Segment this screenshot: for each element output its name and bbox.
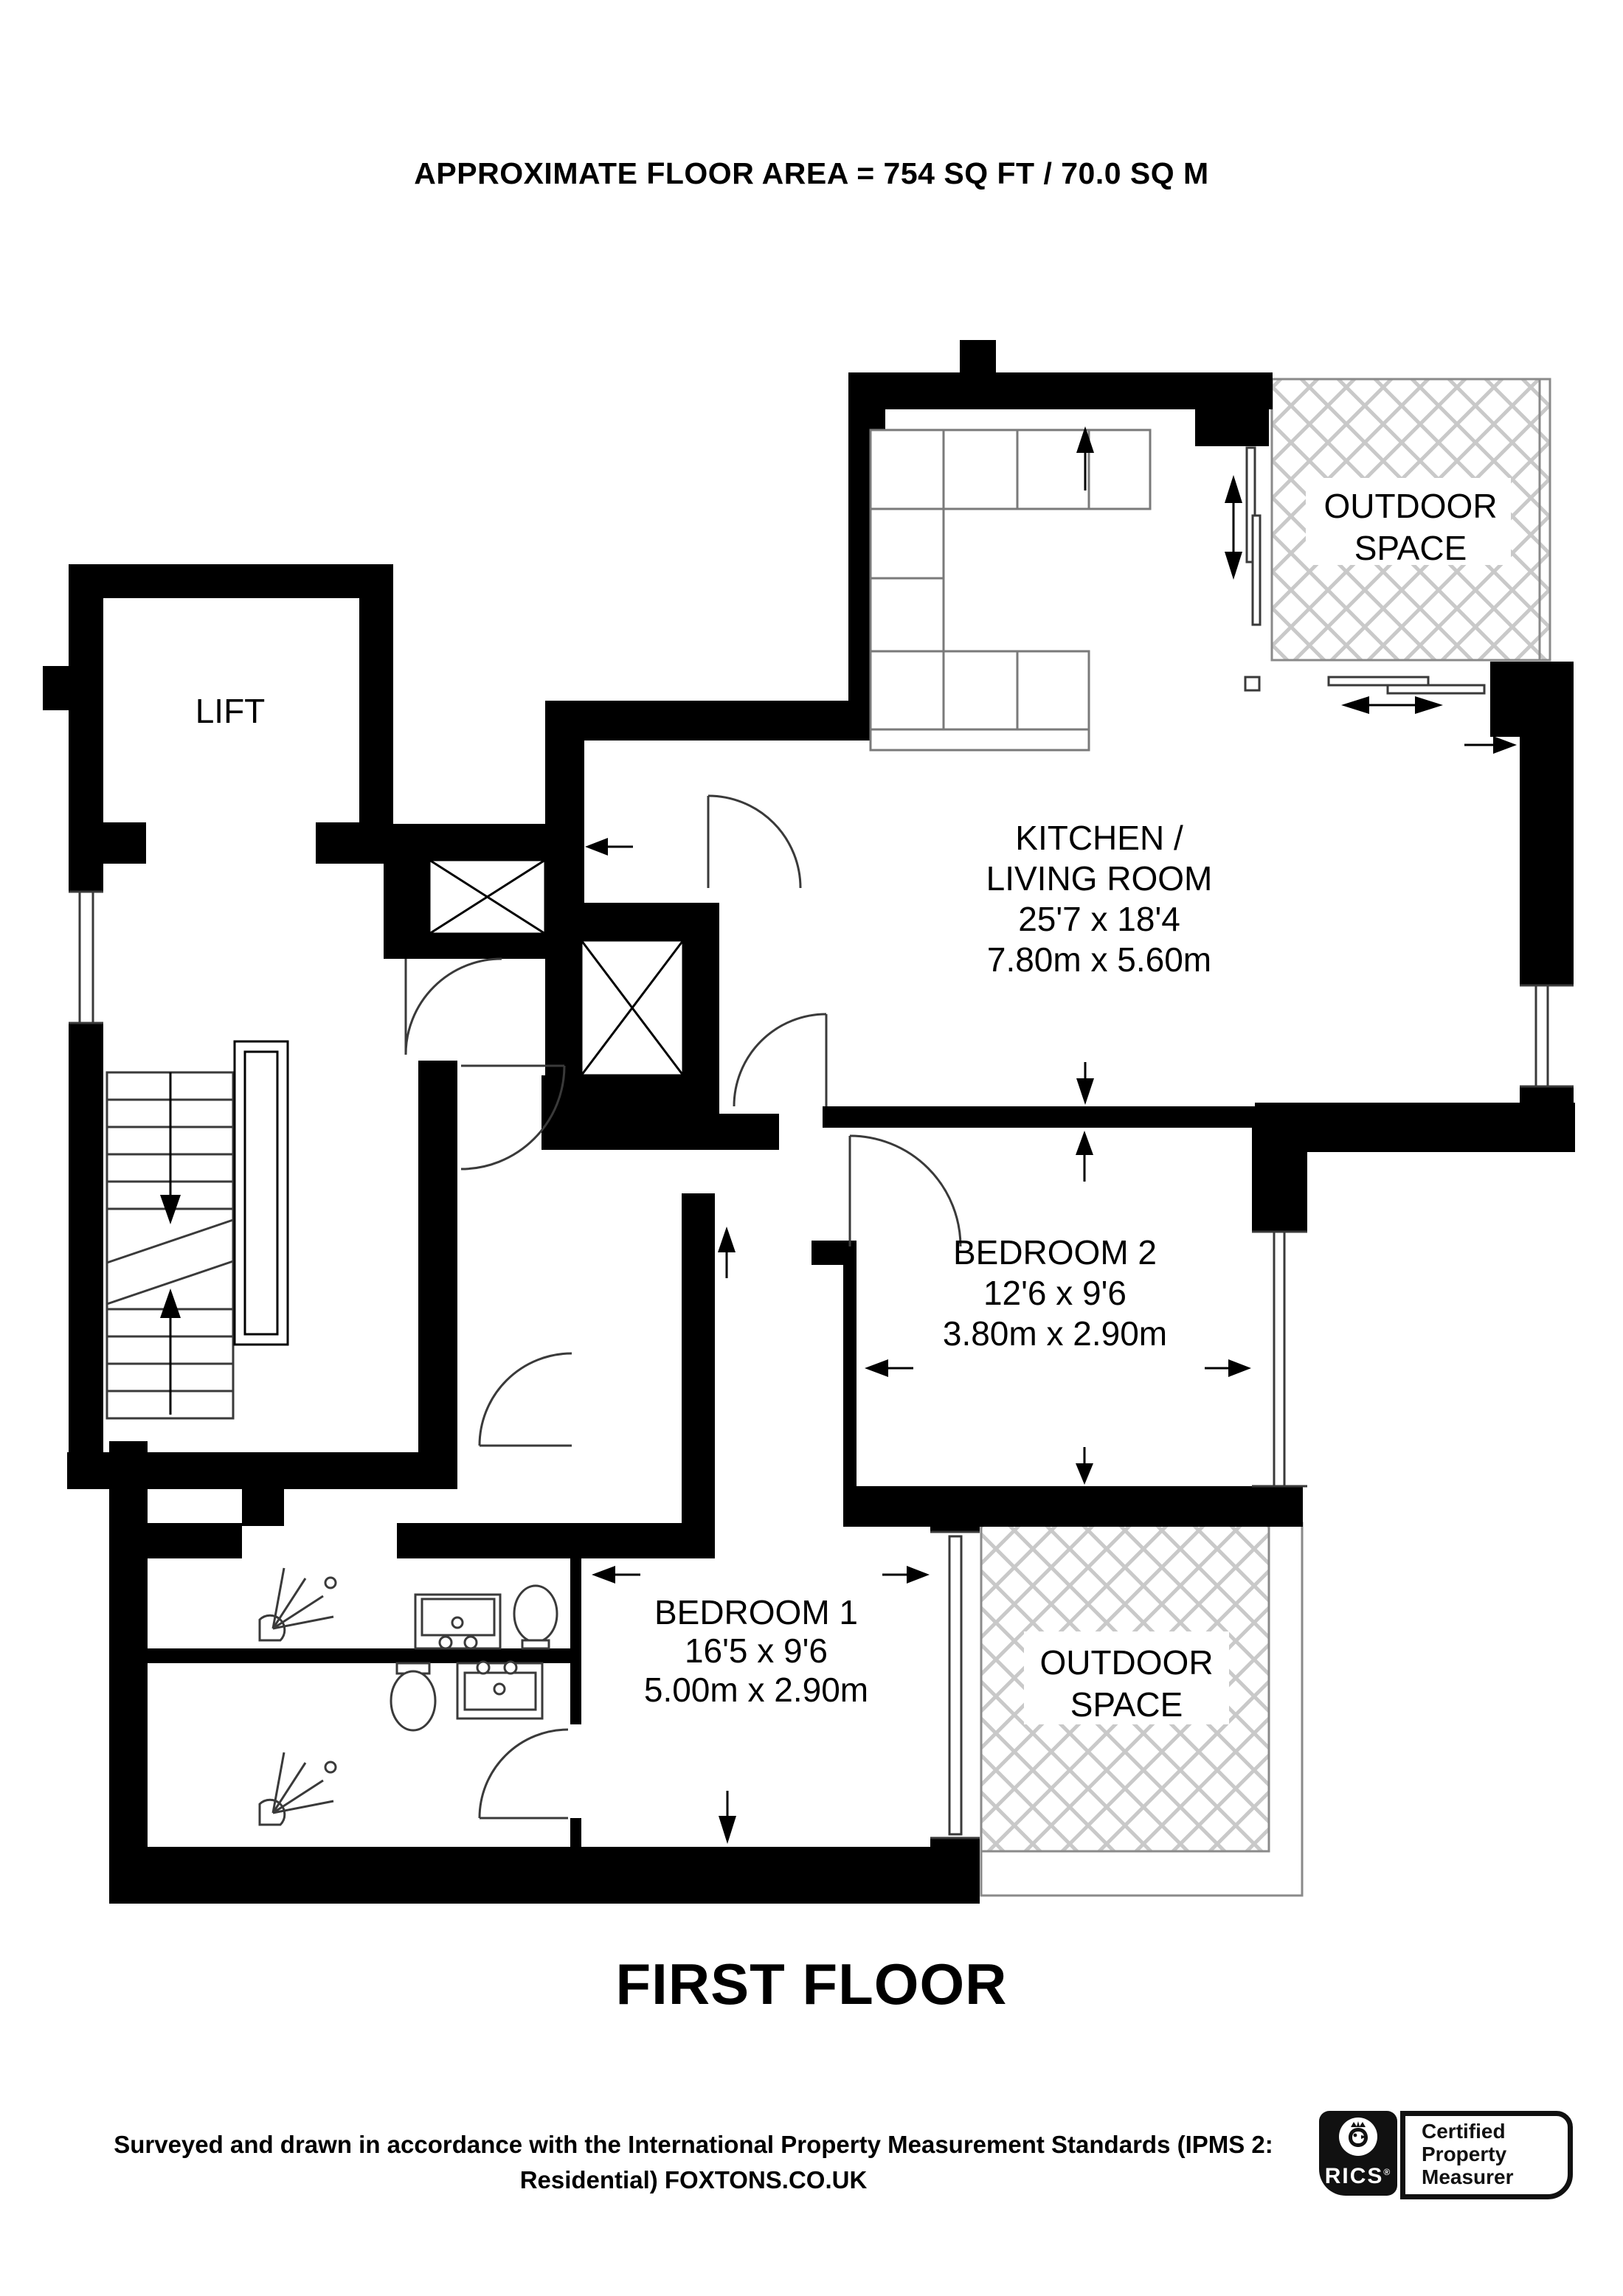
svg-text:25'7 x 18'4: 25'7 x 18'4 <box>1018 900 1180 938</box>
svg-text:OUTDOOR: OUTDOOR <box>1039 1643 1213 1682</box>
svg-text:3.80m x 2.90m: 3.80m x 2.90m <box>943 1314 1167 1353</box>
arrow-bedroom1-right <box>882 1566 930 1584</box>
door-bedroom2 <box>850 1136 961 1246</box>
floor-title: FIRST FLOOR <box>0 1951 1623 2018</box>
bedroom1-label: BEDROOM 1 16'5 x 9'6 5.00m x 2.90m <box>644 1593 868 1709</box>
arrow-kitchen-right <box>1464 736 1517 754</box>
arrow-bedroom1-left <box>592 1566 640 1584</box>
kitchen-label: KITCHEN / LIVING ROOM 25'7 x 18'4 7.80m … <box>986 819 1213 979</box>
stair-handrail <box>235 1041 288 1345</box>
arrow-bedroom2-left <box>865 1359 913 1377</box>
arrow-bedroom2-right <box>1205 1359 1251 1377</box>
svg-text:KITCHEN /: KITCHEN / <box>1015 819 1183 857</box>
rics-lion-icon <box>1338 2117 1378 2157</box>
svg-text:OUTDOOR: OUTDOOR <box>1323 487 1497 525</box>
arrow-bedroom1-down <box>719 1791 736 1844</box>
arrow-kitchen-left <box>585 838 633 856</box>
vanity-sink-top <box>415 1595 500 1648</box>
slide-arrow-horizontal <box>1341 696 1443 714</box>
window-kitchen-right <box>1520 985 1574 1086</box>
svg-text:7.80m x 5.60m: 7.80m x 5.60m <box>987 940 1211 979</box>
sliding-door-bedroom1-right <box>930 1532 980 1838</box>
survey-disclaimer: Surveyed and drawn in accordance with th… <box>44 2127 1343 2198</box>
cert-line1: Certified <box>1422 2120 1568 2143</box>
svg-text:BEDROOM 1: BEDROOM 1 <box>654 1593 858 1631</box>
cert-line3: Measurer <box>1422 2165 1568 2188</box>
floorplan-page: APPROXIMATE FLOOR AREA = 754 SQ FT / 70.… <box>0 0 1623 2296</box>
svg-text:12'6 x 9'6: 12'6 x 9'6 <box>983 1274 1127 1312</box>
arrow-bedroom2-down <box>1076 1447 1093 1485</box>
shower-icon-bottom <box>260 1752 336 1825</box>
shower-icon-top <box>260 1568 336 1640</box>
rics-wordmark: RICS® <box>1319 2164 1397 2189</box>
svg-text:BEDROOM 2: BEDROOM 2 <box>953 1233 1157 1272</box>
registered-mark: ® <box>1383 2167 1391 2177</box>
staircase <box>107 1041 288 1418</box>
svg-text:16'5 x 9'6: 16'5 x 9'6 <box>685 1631 828 1670</box>
survey-disclaimer-line1: Surveyed and drawn in accordance with th… <box>44 2127 1343 2163</box>
toilet-icon-bottom <box>391 1663 435 1730</box>
svg-text:LIVING ROOM: LIVING ROOM <box>986 859 1213 898</box>
certified-property-measurer-badge: Certified Property Measurer <box>1400 2111 1573 2199</box>
window-bedroom2-right <box>1252 1232 1307 1486</box>
door-corridor <box>480 1353 572 1446</box>
door-lift-lobby <box>406 959 502 1055</box>
door-inner-hall <box>734 1014 826 1106</box>
cert-line2: Property <box>1422 2143 1568 2165</box>
arrow-kitchen-down <box>1076 1062 1094 1105</box>
slide-arrow-vertical <box>1225 475 1242 580</box>
svg-text:5.00m x 2.90m: 5.00m x 2.90m <box>644 1671 868 1709</box>
lift-label: LIFT <box>195 692 266 730</box>
survey-disclaimer-line2: Residential) FOXTONS.CO.UK <box>44 2163 1343 2198</box>
bathroom-fixtures <box>260 1568 557 1825</box>
svg-text:SPACE: SPACE <box>1354 529 1467 567</box>
svg-text:SPACE: SPACE <box>1070 1685 1183 1724</box>
rics-logo: RICS® <box>1319 2111 1397 2196</box>
vanity-sink-bottom <box>457 1662 542 1718</box>
door-bathroom <box>480 1730 568 1818</box>
bedroom2-label: BEDROOM 2 12'6 x 9'6 3.80m x 2.90m <box>943 1233 1167 1353</box>
kitchen-units <box>871 430 1150 750</box>
window-stairwell-left <box>69 892 103 1023</box>
arrow-bedroom1-up <box>718 1227 736 1278</box>
toilet-icon-top <box>514 1586 557 1648</box>
arrow-bedroom2-up <box>1076 1131 1093 1182</box>
door-kitchen <box>708 796 800 888</box>
